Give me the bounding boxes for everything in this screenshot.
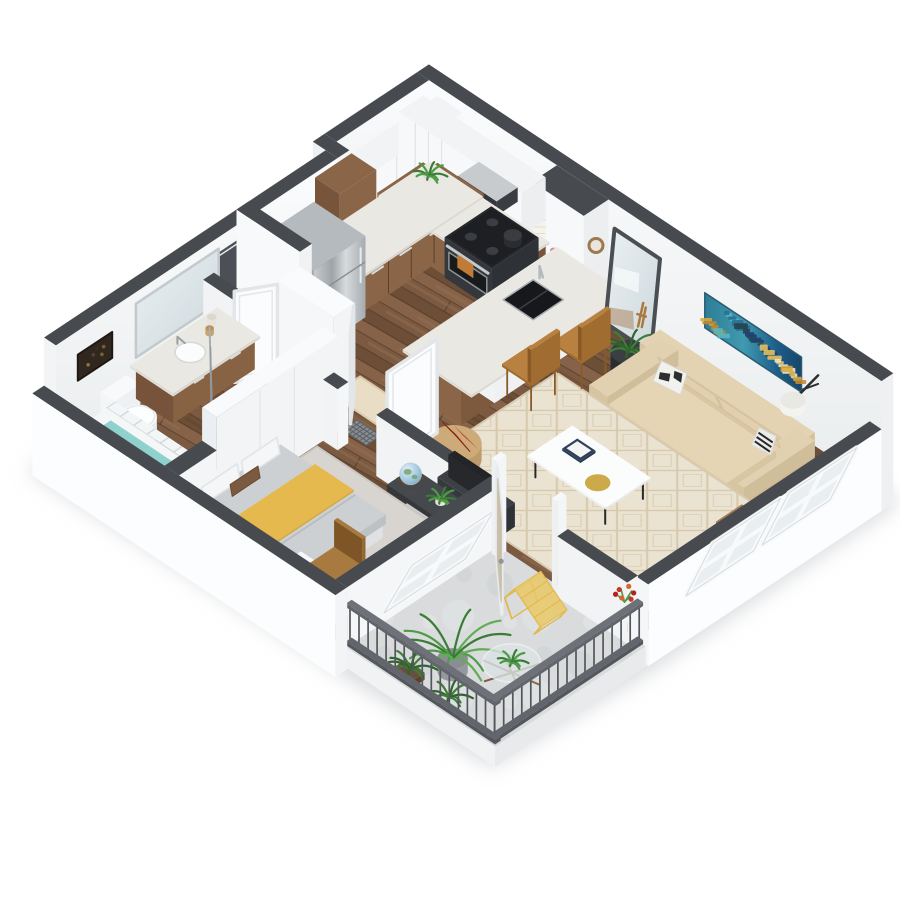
floor-plan-screenshot: [0, 0, 900, 900]
wall-bedroom-stub: [323, 372, 348, 450]
toiletry-1: [207, 314, 217, 327]
kettle: [504, 229, 522, 248]
wall-lamp-shade: [780, 392, 806, 417]
floor-plan-3d-render: [0, 0, 900, 900]
vanity-sink: [175, 342, 205, 362]
coffee-table-tray: [585, 474, 611, 491]
kitchen-round-mirror: [589, 238, 603, 252]
closet-door-2: [350, 306, 353, 424]
